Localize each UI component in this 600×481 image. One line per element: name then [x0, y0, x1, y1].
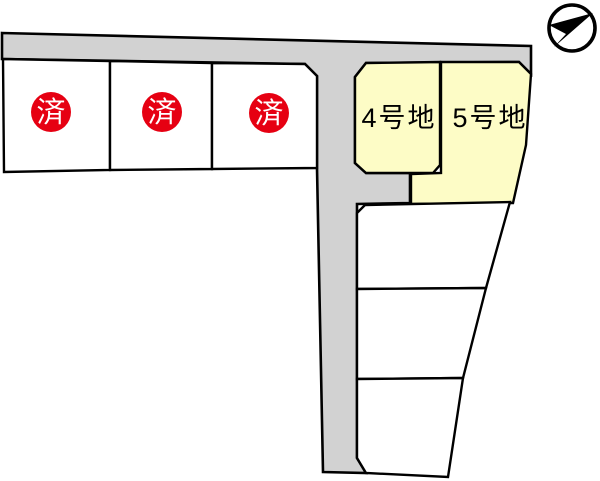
- north-arrow-icon: [549, 5, 595, 51]
- sold-badge-label-2: 済: [147, 96, 176, 129]
- lot-vacant-3: [357, 378, 463, 477]
- sold-badge-label-1: 済: [36, 96, 65, 129]
- lot-vacant-1: [357, 202, 510, 289]
- lot-map: 済 済 済 4号地 5号地: [0, 0, 600, 481]
- lot-map-canvas: 済 済 済 4号地 5号地: [0, 0, 600, 481]
- sold-badge-label-3: 済: [254, 97, 283, 130]
- lot-5-label: 5号地: [452, 103, 527, 133]
- lot-4-label: 4号地: [361, 103, 436, 133]
- lot-vacant-2: [357, 288, 486, 379]
